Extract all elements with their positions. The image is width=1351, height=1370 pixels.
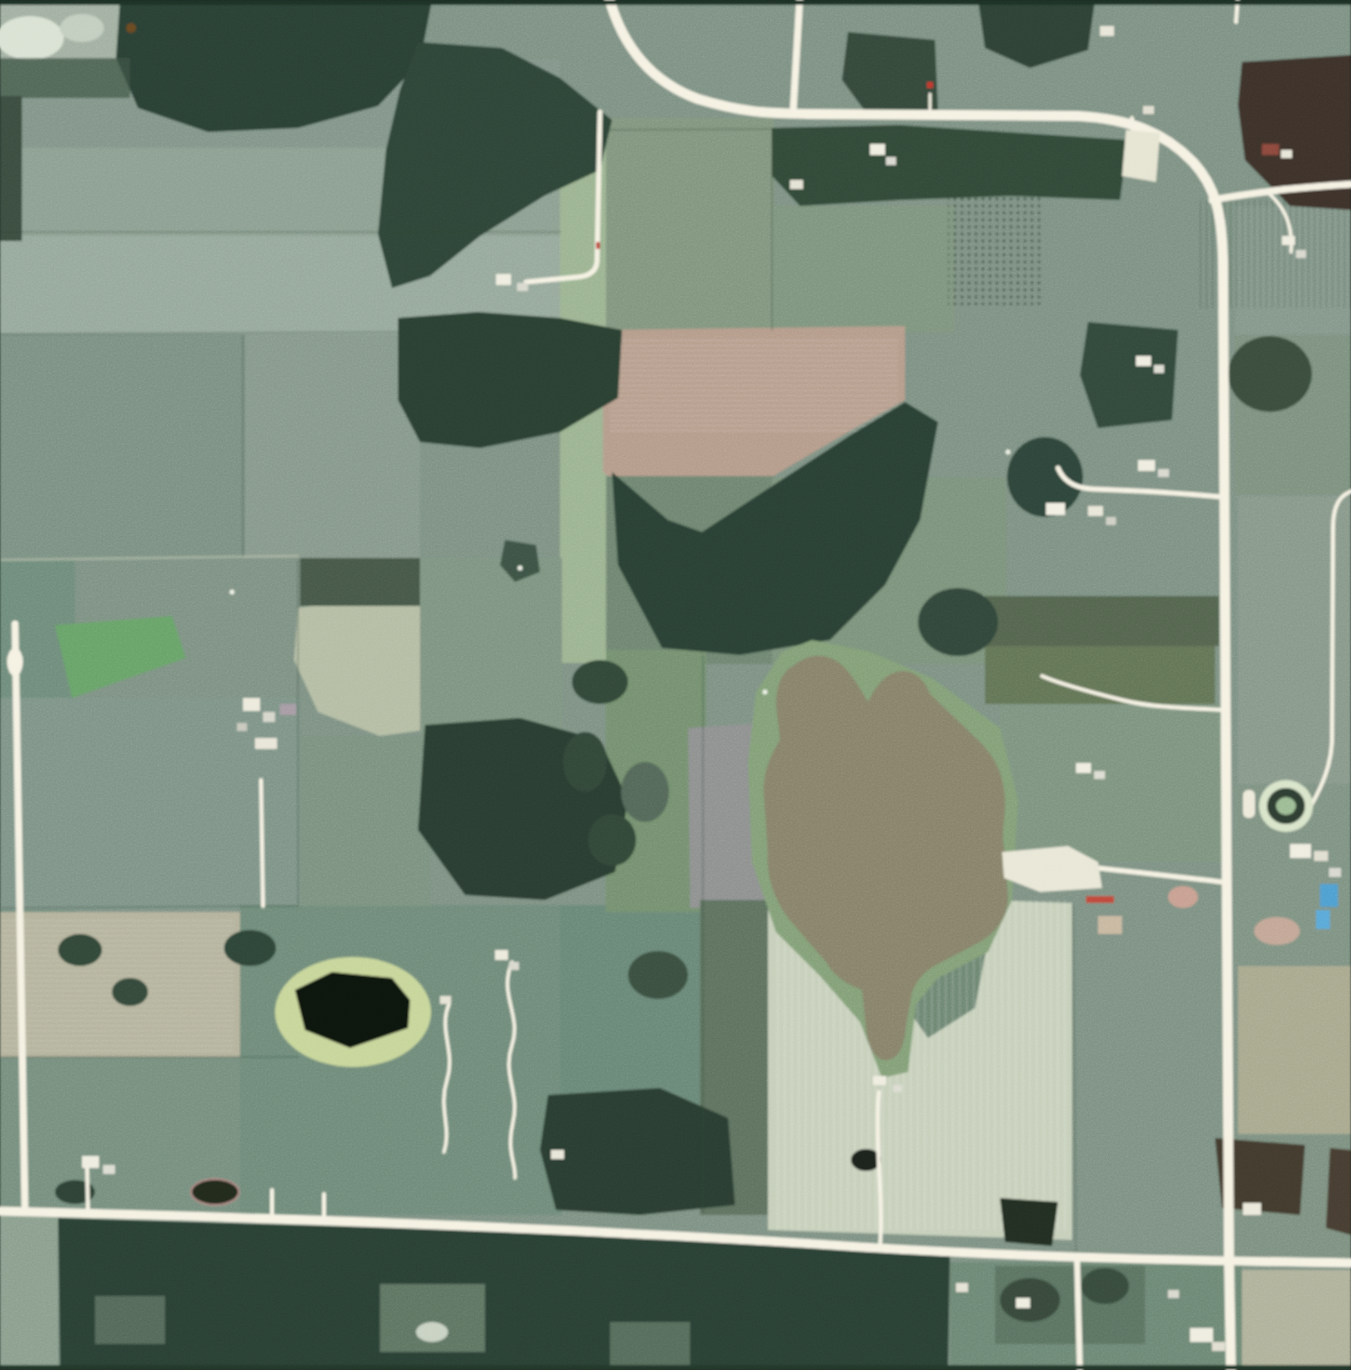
aerial-photo [0,0,1351,1370]
aerial-photo-svg [0,0,1351,1370]
film-grain-overlay [0,0,1351,1370]
